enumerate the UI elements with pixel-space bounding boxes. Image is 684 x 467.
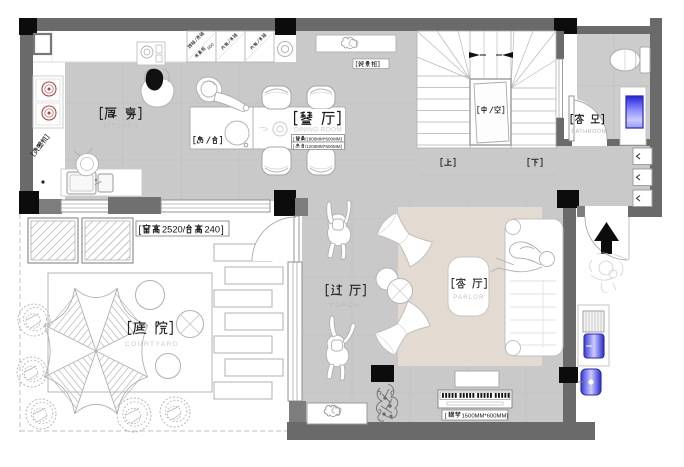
svg-text:]: ] — [221, 225, 224, 236]
svg-text:PARLOR: PARLOR — [453, 295, 484, 301]
svg-text:KITCHEN: KITCHEN — [103, 123, 139, 130]
svg-text:PORCH: PORCH — [330, 302, 361, 309]
svg-text:BATHROOM: BATHROOM — [571, 129, 606, 135]
svg-text:COURTYARD: COURTYARD — [125, 341, 179, 348]
svg-text:240: 240 — [205, 225, 221, 235]
svg-text:[: [ — [445, 413, 447, 420]
svg-text:[: [ — [139, 225, 142, 236]
svg-text:/1800MM*600MM]: /1800MM*600MM] — [305, 137, 342, 142]
svg-text:/1200MM*600MM]: /1200MM*600MM] — [305, 144, 342, 149]
svg-text:2520/: 2520/ — [162, 225, 186, 235]
svg-text:1500MM*600MM]: 1500MM*600MM] — [462, 413, 509, 419]
svg-text:DINING ROOM: DINING ROOM — [294, 127, 342, 134]
